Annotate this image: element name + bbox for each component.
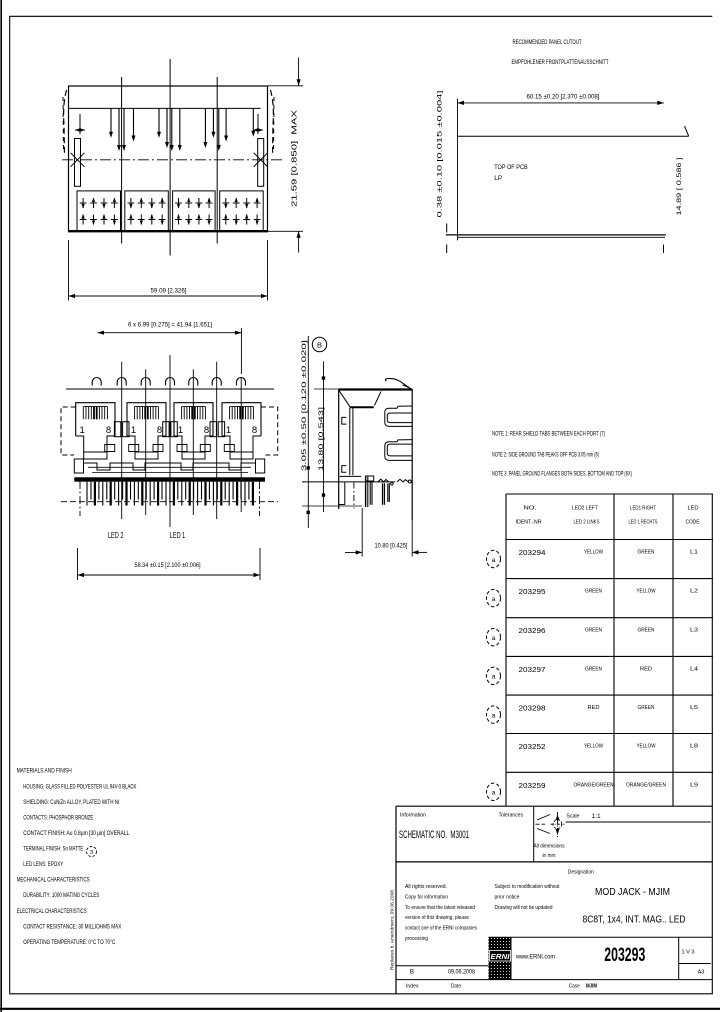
svg-text:LED: LED xyxy=(688,506,699,512)
svg-text:MATERIALS AND FINISH: MATERIALS AND FINISH xyxy=(17,768,72,775)
svg-text:MOD JACK - MJIM: MOD JACK - MJIM xyxy=(595,887,670,898)
svg-text:B: B xyxy=(410,969,414,976)
svg-text:L4: L4 xyxy=(690,666,699,672)
svg-text:1: 1 xyxy=(131,425,136,436)
svg-text:IDENT.-NR: IDENT.-NR xyxy=(516,520,542,526)
svg-text:GREEN: GREEN xyxy=(638,628,655,634)
svg-text:Case: Case xyxy=(569,984,580,990)
svg-text:1: 1 xyxy=(178,425,183,436)
svg-text:LED LENS: EPOXY: LED LENS: EPOXY xyxy=(23,861,63,868)
svg-text:Tolerances: Tolerances xyxy=(499,813,524,819)
svg-text:SCHEMATIC NO. M3001: SCHEMATIC NO. M3001 xyxy=(399,829,469,841)
svg-text:a: a xyxy=(492,635,496,642)
svg-text:www.ERNI.com: www.ERNI.com xyxy=(515,954,555,961)
svg-text:Copy for information: Copy for information xyxy=(405,895,448,901)
svg-text:All rights reserved.: All rights reserved. xyxy=(405,884,447,890)
svg-text:B: B xyxy=(317,341,322,350)
svg-text:60.15 ±0.20 [2.370 ±0.008]: 60.15 ±0.20 [2.370 ±0.008] xyxy=(527,94,600,101)
svg-text:L2: L2 xyxy=(690,589,698,595)
svg-text:Information: Information xyxy=(400,813,426,819)
svg-text:203295: 203295 xyxy=(519,589,546,596)
svg-text:NOTE 3: PANEL GROUND FLANGES B: NOTE 3: PANEL GROUND FLANGES BOTH SIDES,… xyxy=(492,471,632,478)
svg-text:09.06.2008: 09.06.2008 xyxy=(448,969,475,976)
svg-text:1: 1 xyxy=(80,425,85,436)
svg-text:YELLOW: YELLOW xyxy=(584,550,604,556)
svg-text:a: a xyxy=(492,790,496,797)
svg-text:L1: L1 xyxy=(690,550,698,556)
svg-text:YELLOW: YELLOW xyxy=(584,744,604,750)
svg-text:Scale: Scale xyxy=(566,814,579,820)
svg-text:L3: L3 xyxy=(690,628,698,634)
svg-text:203252: 203252 xyxy=(519,744,546,751)
svg-text:203259: 203259 xyxy=(519,783,546,790)
svg-text:Subject to modification withou: Subject to modification without xyxy=(495,884,560,890)
svg-text:processing: processing xyxy=(405,936,428,942)
svg-text:21.59 [0.850] MAX: 21.59 [0.850] MAX xyxy=(289,110,298,207)
svg-text:CONTACTS: PHOSPHOR BRONZE: CONTACTS: PHOSPHOR BRONZE xyxy=(23,814,93,821)
svg-text:8: 8 xyxy=(204,425,209,436)
svg-text:LED1 RIGHT: LED1 RIGHT xyxy=(630,506,656,512)
svg-text:SHIELDING: CuNiZn ALLOY, PLATE: SHIELDING: CuNiZn ALLOY, PLATED WITH NI xyxy=(23,799,119,806)
svg-text:0.38 ±0.10 [0.015 ±0.004]: 0.38 ±0.10 [0.015 ±0.004] xyxy=(437,90,444,217)
svg-text:ERNI: ERNI xyxy=(491,952,511,961)
svg-text:NOTE 1: REAR SHIELD TABS BETWE: NOTE 1: REAR SHIELD TABS BETWEEN EACH PO… xyxy=(492,430,605,437)
svg-text:1 V 3: 1 V 3 xyxy=(681,950,694,956)
svg-text:CODE: CODE xyxy=(686,520,700,526)
svg-text:EMPFOHLENER FRONTPLATTENAUSSCH: EMPFOHLENER FRONTPLATTENAUSSCHNITT xyxy=(512,59,609,66)
svg-text:MECHANICAL CHARACTERISTICS: MECHANICAL CHARACTERISTICS xyxy=(17,877,90,884)
svg-text:GREEN: GREEN xyxy=(585,628,602,634)
svg-text:prior notice: prior notice xyxy=(495,895,520,901)
svg-text:1:1: 1:1 xyxy=(592,813,601,820)
svg-text:version of this drawing, pleas: version of this drawing, please xyxy=(405,915,469,921)
svg-text:3: 3 xyxy=(90,850,93,856)
svg-text:Date: Date xyxy=(451,984,461,990)
svg-text:6 x 6.99 [0.275] = 41.94 [1.65: 6 x 6.99 [0.275] = 41.94 [1.651] xyxy=(128,322,212,329)
svg-text:NO.: NO. xyxy=(524,506,537,512)
svg-text:a: a xyxy=(492,596,496,603)
svg-text:L9: L9 xyxy=(690,782,698,788)
svg-text:LP: LP xyxy=(494,175,502,182)
svg-text:RED: RED xyxy=(588,705,600,711)
svg-text:TERMINAL FINISH: Sn MATTE: TERMINAL FINISH: Sn MATTE xyxy=(23,846,83,853)
svg-text:8: 8 xyxy=(106,425,111,436)
svg-text:13.80 [0.543]: 13.80 [0.543] xyxy=(318,407,325,471)
svg-text:All dimensions: All dimensions xyxy=(534,844,565,850)
svg-text:CONTACT FINISH: Au 0.8µm [30 µ: CONTACT FINISH: Au 0.8µm [30 µin] OVERAL… xyxy=(23,830,129,837)
svg-text:YELLOW: YELLOW xyxy=(637,744,657,750)
svg-text:a: a xyxy=(492,674,496,681)
svg-text:HOUSING: GLASS FILLED POLYESTE: HOUSING: GLASS FILLED POLYESTER UL 94V-0… xyxy=(23,783,137,790)
svg-text:LED 1: LED 1 xyxy=(170,531,186,540)
svg-text:in mm: in mm xyxy=(543,853,556,859)
svg-text:203297: 203297 xyxy=(519,667,546,674)
svg-text:GREEN: GREEN xyxy=(638,705,655,711)
svg-text:ORANGE/GREEN: ORANGE/GREEN xyxy=(626,782,666,788)
svg-text:203296: 203296 xyxy=(519,628,546,635)
svg-text:LED 1 RECHTS: LED 1 RECHTS xyxy=(629,520,658,526)
svg-text:10.80 [0.425]: 10.80 [0.425] xyxy=(375,543,408,550)
svg-text:CONTACT RESISTANCE: 30 MILLIOH: CONTACT RESISTANCE: 30 MILLIOHMS MAX xyxy=(23,923,121,930)
svg-text:NOTE 2: SIDE GROUND TAB PEAKS: NOTE 2: SIDE GROUND TAB PEAKS OFF PCB 3.… xyxy=(492,451,599,458)
svg-text:59.09 [2.326]: 59.09 [2.326] xyxy=(151,288,187,295)
svg-text:RECOMMENDED PANEL CUTOUT: RECOMMENDED PANEL CUTOUT xyxy=(513,39,582,46)
svg-text:OPERATING TEMPERATURE: 0°C TO: OPERATING TEMPERATURE: 0°C TO 70°C xyxy=(23,939,115,946)
svg-text:203294: 203294 xyxy=(519,550,546,557)
svg-text:3.05 ±0.50 [0.120 ±0.020]: 3.05 ±0.50 [0.120 ±0.020] xyxy=(301,340,308,471)
svg-text:RED: RED xyxy=(640,666,652,672)
svg-text:GREEN: GREEN xyxy=(638,550,655,556)
svg-text:8: 8 xyxy=(252,425,257,436)
svg-text:A3: A3 xyxy=(698,970,705,976)
svg-text:LED 2 LINKS: LED 2 LINKS xyxy=(574,520,600,526)
svg-text:58.34 ±0.15 [2.100 ±0.006]: 58.34 ±0.15 [2.100 ±0.006] xyxy=(135,562,201,569)
svg-text:LED2 LEFT: LED2 LEFT xyxy=(572,506,598,512)
svg-text:14.89 [ 0.586 ]: 14.89 [ 0.586 ] xyxy=(676,157,683,215)
svg-text:1: 1 xyxy=(226,425,231,436)
svg-text:Index: Index xyxy=(406,984,419,990)
svg-text:TOP OF PCB: TOP OF PCB xyxy=(494,164,528,171)
svg-text:LED 2: LED 2 xyxy=(108,531,124,540)
svg-text:To ensure that the latest rele: To ensure that the latest released xyxy=(405,905,475,911)
svg-text:YELLOW: YELLOW xyxy=(637,589,657,595)
svg-text:8: 8 xyxy=(157,425,162,436)
svg-text:Drawing will not be updated: Drawing will not be updated xyxy=(495,905,553,911)
svg-text:Designation: Designation xyxy=(568,869,594,875)
svg-text:DURABILITY: 1000 MATING CYCLES: DURABILITY: 1000 MATING CYCLES xyxy=(23,892,99,899)
svg-text:Replaces b, Amendment, 09.06.2: Replaces b, Amendment, 09.06.2008 xyxy=(390,889,395,970)
svg-text:a: a xyxy=(492,557,496,564)
svg-text:203298: 203298 xyxy=(519,706,546,713)
svg-text:ELECTRICAL CHARACTERISTICS: ELECTRICAL CHARACTERISTICS xyxy=(17,908,87,915)
svg-text:GREEN: GREEN xyxy=(585,589,602,595)
svg-text:8C8T, 1x4, INT. MAG.. LED: 8C8T, 1x4, INT. MAG.. LED xyxy=(583,915,686,926)
svg-text:203293: 203293 xyxy=(604,945,645,966)
svg-text:ORANGE/GREEN: ORANGE/GREEN xyxy=(574,782,614,788)
svg-text:GREEN: GREEN xyxy=(585,666,602,672)
svg-text:L5: L5 xyxy=(690,705,698,711)
svg-text:MJIM: MJIM xyxy=(586,984,597,990)
svg-text:a: a xyxy=(492,712,496,719)
svg-text:L8: L8 xyxy=(690,744,698,750)
svg-text:contact one of the ERNI compan: contact one of the ERNI companies xyxy=(405,926,477,932)
